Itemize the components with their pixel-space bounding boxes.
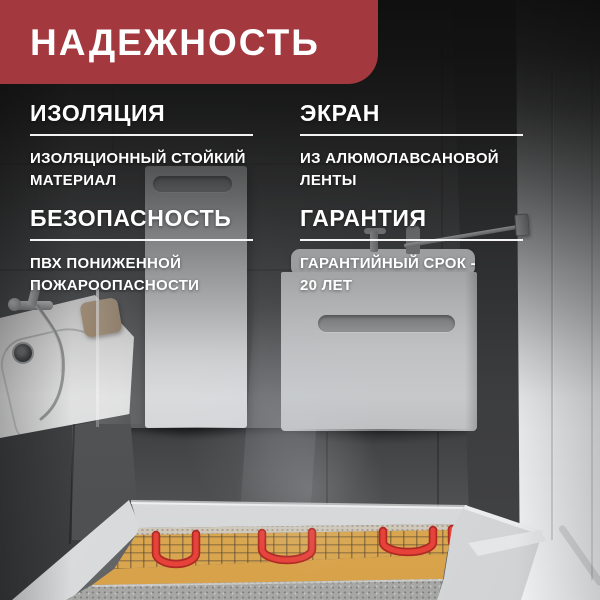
feature-description: ИЗОЛЯЦИОННЫЙ СТОЙКИЙ МАТЕРИАЛ xyxy=(30,148,268,192)
feature-divider xyxy=(30,134,253,136)
feature-title: ГАРАНТИЯ xyxy=(300,204,550,232)
promo-image: НАДЕЖНОСТЬ ИЗОЛЯЦИЯ ИЗОЛЯЦИОННЫЙ СТОЙКИЙ… xyxy=(0,0,600,600)
feature-safety: БЕЗОПАСНОСТЬ ПВХ ПОНИЖЕННОЙ ПОЖАРООПАСНО… xyxy=(30,204,280,297)
feature-screen: ЭКРАН ИЗ АЛЮМОЛАВСАНОВОЙ ЛЕНТЫ xyxy=(300,99,550,192)
title-banner: НАДЕЖНОСТЬ xyxy=(0,0,378,84)
feature-divider xyxy=(300,134,523,136)
feature-warranty: ГАРАНТИЯ ГАРАНТИЙНЫЙ СРОК - 20 ЛЕТ xyxy=(300,204,550,297)
feature-divider xyxy=(300,239,523,241)
feature-divider xyxy=(30,239,253,241)
feature-title: ИЗОЛЯЦИЯ xyxy=(30,99,280,127)
feature-insulation: ИЗОЛЯЦИЯ ИЗОЛЯЦИОННЫЙ СТОЙКИЙ МАТЕРИАЛ xyxy=(30,99,280,192)
feature-description: ПВХ ПОНИЖЕННОЙ ПОЖАРООПАСНОСТИ xyxy=(30,253,268,297)
banner-title: НАДЕЖНОСТЬ xyxy=(30,24,320,61)
feature-title: БЕЗОПАСНОСТЬ xyxy=(30,204,280,232)
feature-title: ЭКРАН xyxy=(300,99,550,127)
feature-description: ИЗ АЛЮМОЛАВСАНОВОЙ ЛЕНТЫ xyxy=(300,148,538,192)
vignette-overlay xyxy=(0,0,600,600)
feature-description: ГАРАНТИЙНЫЙ СРОК - 20 ЛЕТ xyxy=(300,253,538,297)
